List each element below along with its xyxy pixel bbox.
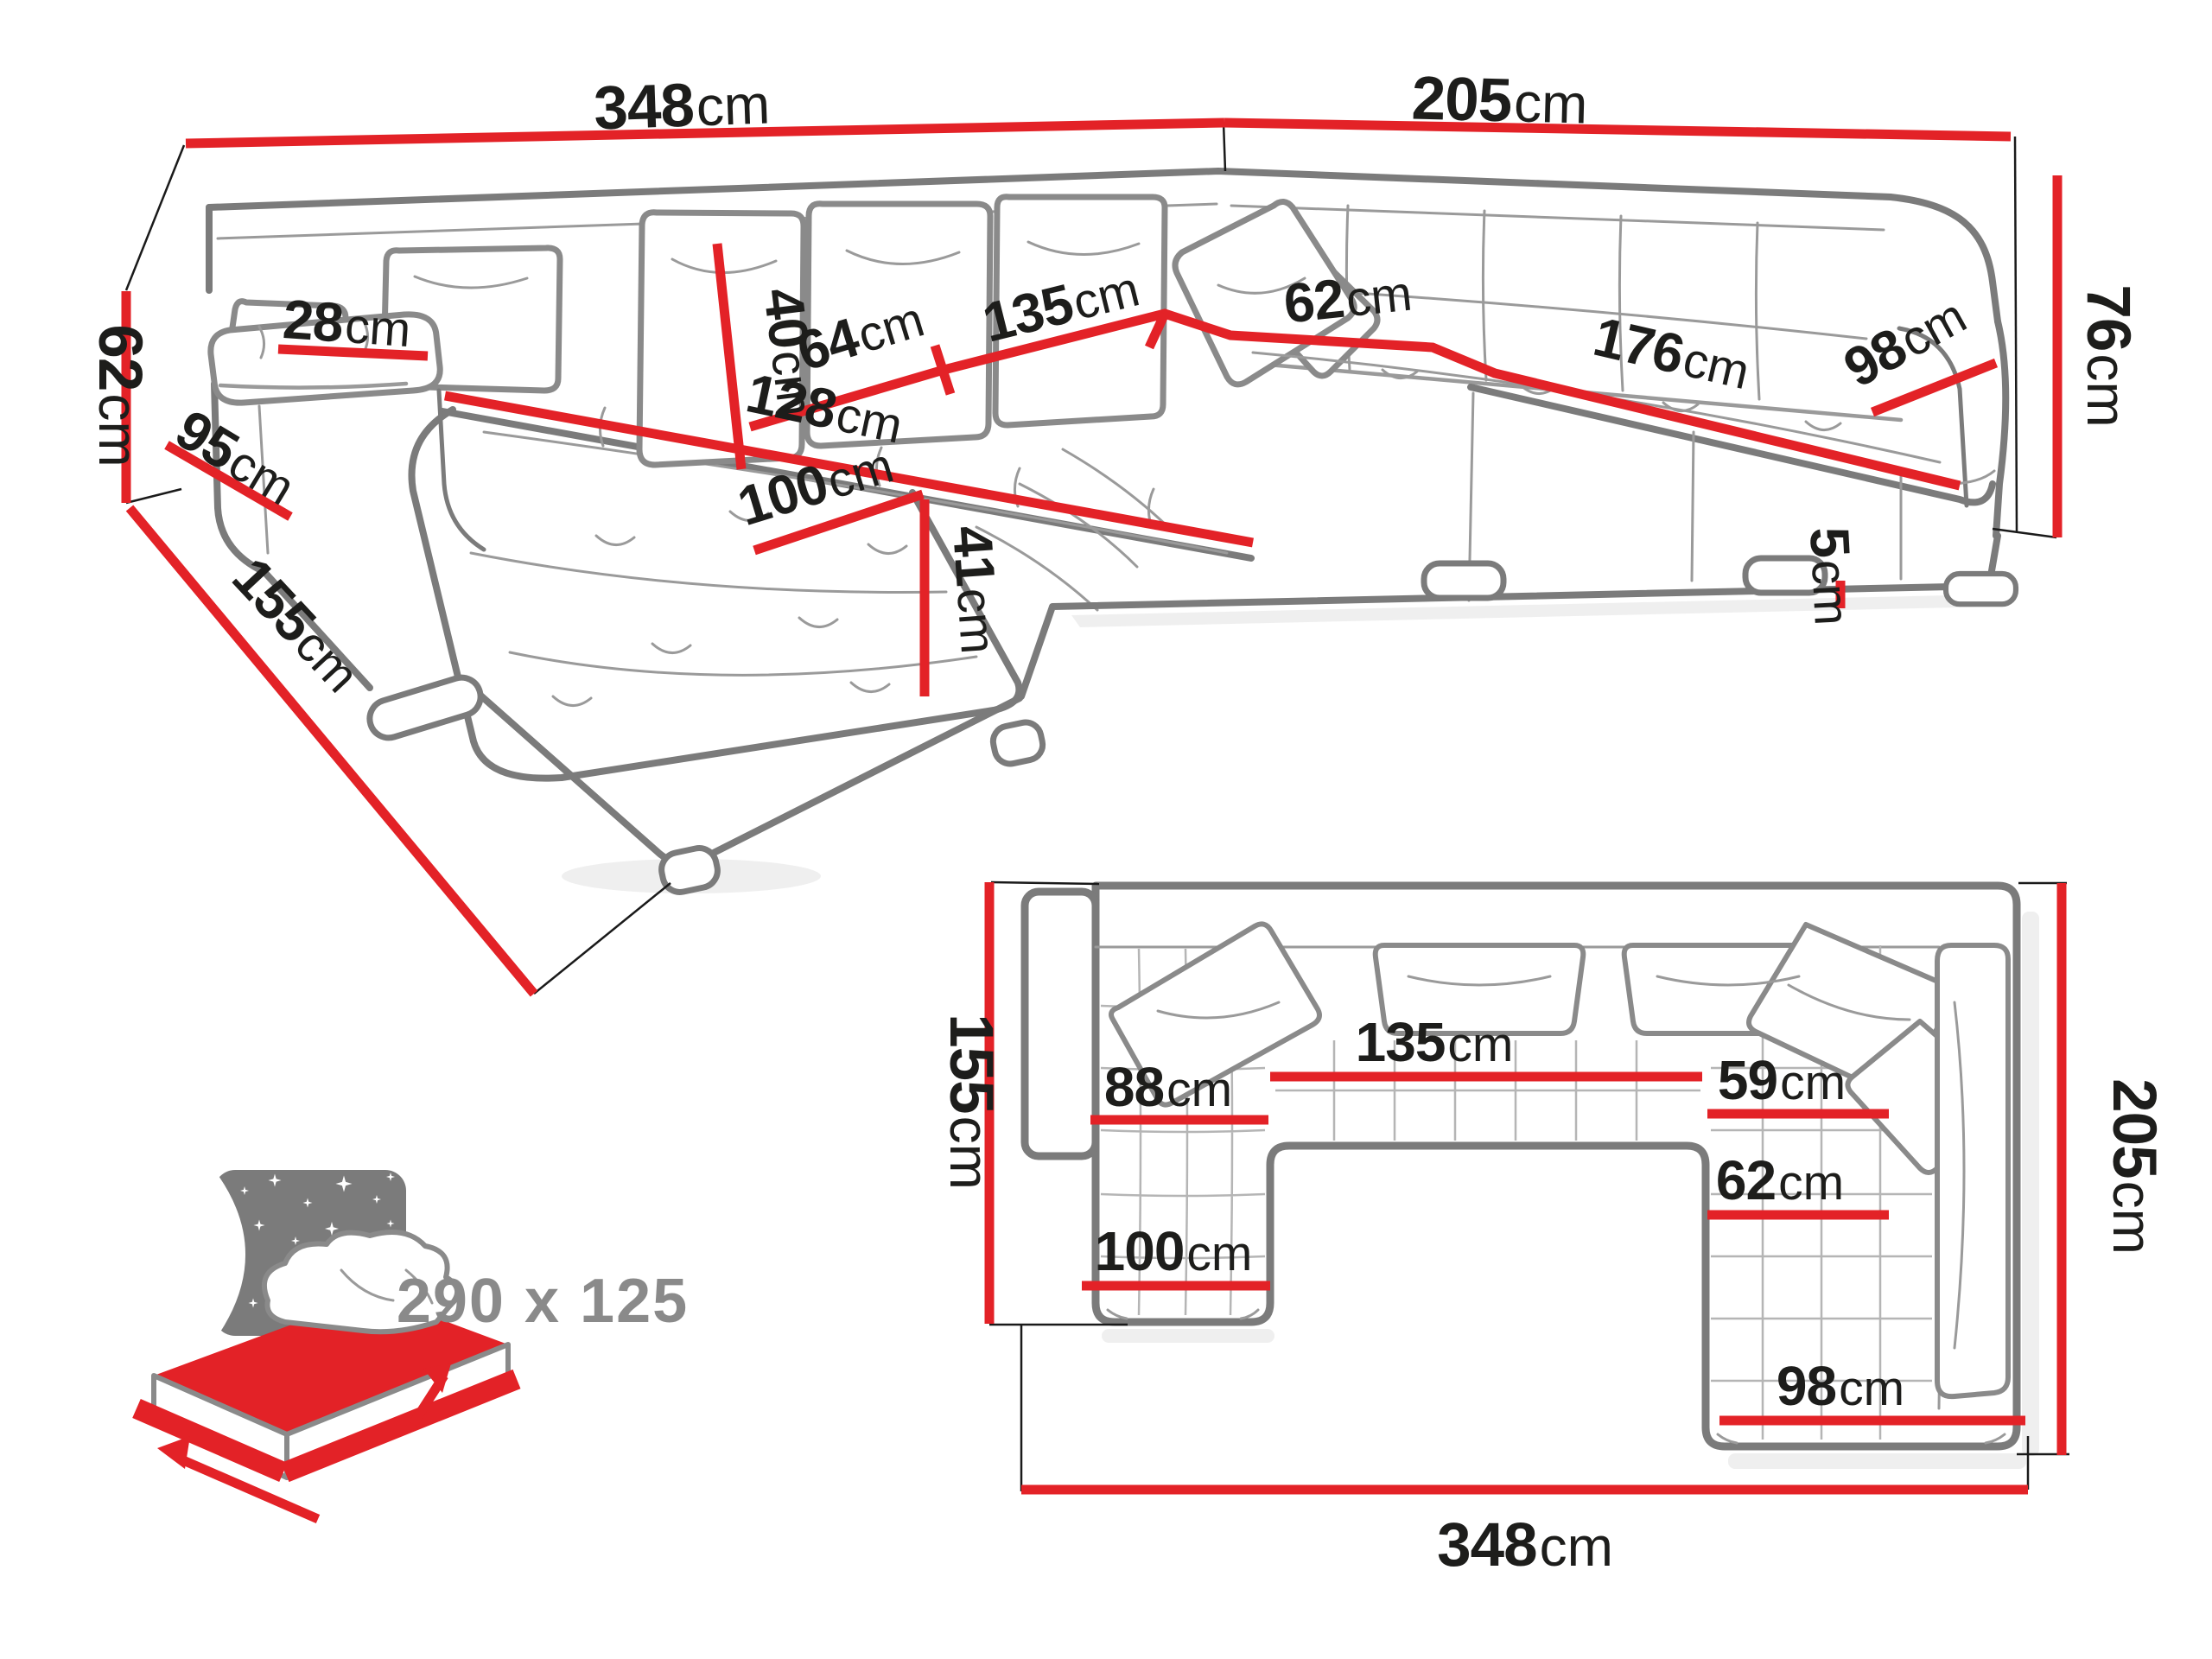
- plan-label-205: 205cm: [2100, 1078, 2168, 1255]
- dim-label-5: 5cm: [1798, 525, 1866, 626]
- dim-label-95: 95cm: [165, 397, 307, 517]
- shadow: [1102, 1329, 1274, 1343]
- extension-line: [991, 882, 1099, 884]
- dim-label-205: 205cm: [1411, 64, 1589, 137]
- extension-line: [2015, 137, 2017, 532]
- dim-label-41: 41cm: [941, 524, 1012, 656]
- plan-label-98: 98cm: [1777, 1355, 1904, 1417]
- plan-label-135: 135cm: [1356, 1011, 1514, 1073]
- extension-line: [989, 1325, 1128, 1491]
- sofa-leg: [1424, 563, 1503, 598]
- unfold-arrow-head: [157, 1436, 190, 1469]
- armrest-base: [365, 673, 485, 743]
- diagram-canvas: 348cm 205cm 76cm 62cm 95cm 28cm 40cm 64c…: [0, 0, 2212, 1659]
- plan-view: 155cm 205cm 348cm 88cm 135cm 59cm 62cm 9…: [937, 882, 2168, 1580]
- sofa-leg: [990, 720, 1046, 767]
- plan-label-88: 88cm: [1104, 1056, 1232, 1118]
- plan-label-59: 59cm: [1718, 1049, 1846, 1111]
- extension-line: [534, 883, 671, 994]
- dim-line-205: [1224, 123, 2011, 137]
- dim-label-155: 155cm: [220, 546, 373, 704]
- plan-label-100: 100cm: [1095, 1220, 1253, 1282]
- plan-label-155: 155cm: [937, 1014, 1005, 1190]
- corner-seat-seams: [976, 449, 1168, 610]
- furniture-dimension-diagram: 348cm 205cm 76cm 62cm 95cm 28cm 40cm 64c…: [0, 0, 2212, 1659]
- bench-seat-seam: [1253, 353, 1940, 462]
- extension-line: [126, 489, 181, 503]
- sofa-leg: [1946, 574, 2016, 604]
- dim-line-155: [130, 508, 534, 994]
- dim-label-62-left: 62cm: [86, 324, 154, 467]
- dim-label-76: 76cm: [2074, 284, 2142, 427]
- sleeping-size-label: 290 x 125: [397, 1267, 689, 1336]
- perspective-view: 348cm 205cm 76cm 62cm 95cm 28cm 40cm 64c…: [86, 64, 2142, 994]
- extension-line: [126, 145, 184, 290]
- dim-label-348: 348cm: [593, 68, 771, 143]
- plan-label-62: 62cm: [1716, 1149, 1844, 1211]
- extension-line: [1993, 529, 2056, 537]
- sleeping-function: 290 x 125: [137, 1170, 689, 1519]
- bed-icon: [137, 1170, 517, 1519]
- extension-line: [1224, 123, 1225, 171]
- plan-armrest: [1025, 892, 1096, 1156]
- chaise-seams: [471, 553, 976, 675]
- right-arm-outer: [1996, 321, 2005, 536]
- chaise-dimples: [553, 512, 906, 706]
- plan-label-348: 348cm: [1437, 1511, 1613, 1580]
- shadow: [2022, 912, 2039, 1456]
- plan-right-backrest-cushion: [1937, 945, 2008, 1396]
- shadow: [1728, 1453, 2026, 1469]
